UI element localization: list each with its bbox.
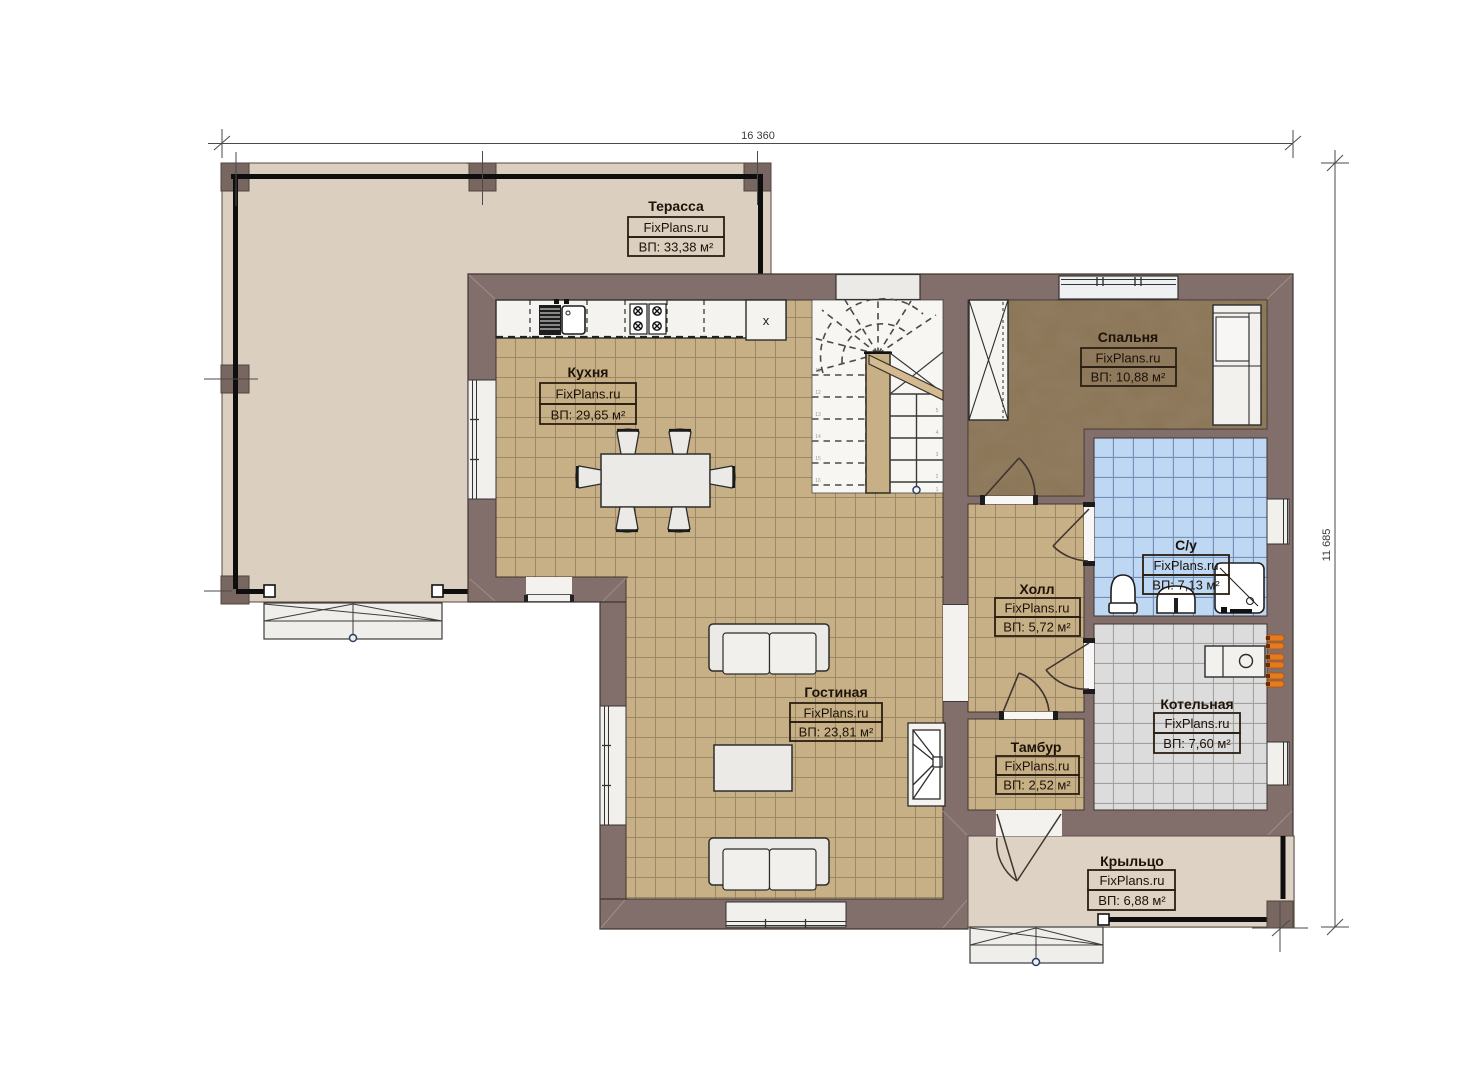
- svg-text:ВП: 5,72 м²: ВП: 5,72 м²: [1003, 620, 1071, 635]
- svg-text:FixPlans.ru: FixPlans.ru: [1004, 601, 1069, 616]
- svg-text:Тамбур: Тамбур: [1011, 739, 1062, 755]
- svg-text:14: 14: [815, 434, 821, 440]
- svg-text:ВП: 6,88 м²: ВП: 6,88 м²: [1098, 893, 1166, 908]
- svg-text:13: 13: [815, 412, 821, 418]
- svg-text:11 685: 11 685: [1321, 529, 1333, 562]
- svg-text:3: 3: [936, 452, 939, 458]
- svg-text:ВП: 23,81 м²: ВП: 23,81 м²: [799, 725, 874, 740]
- svg-text:15: 15: [815, 456, 821, 462]
- svg-text:x: x: [763, 313, 770, 328]
- svg-text:16: 16: [815, 478, 821, 484]
- svg-text:11: 11: [815, 368, 820, 374]
- svg-text:Кухня: Кухня: [568, 364, 609, 380]
- svg-text:ВП: 2,52 м²: ВП: 2,52 м²: [1003, 778, 1071, 793]
- svg-text:1: 1: [936, 487, 939, 493]
- svg-text:FixPlans.ru: FixPlans.ru: [1004, 759, 1069, 774]
- svg-text:ВП: 7,60 м²: ВП: 7,60 м²: [1163, 736, 1231, 751]
- svg-text:ВП: 7,13 м²: ВП: 7,13 м²: [1152, 578, 1220, 593]
- svg-text:С/у: С/у: [1175, 537, 1197, 553]
- svg-text:16 360: 16 360: [741, 130, 775, 142]
- svg-text:FixPlans.ru: FixPlans.ru: [555, 387, 620, 402]
- svg-text:Спальня: Спальня: [1098, 329, 1158, 345]
- svg-text:FixPlans.ru: FixPlans.ru: [1095, 351, 1160, 366]
- svg-text:Гостиная: Гостиная: [804, 684, 867, 700]
- svg-text:Холл: Холл: [1019, 581, 1054, 597]
- svg-text:5: 5: [936, 408, 939, 414]
- svg-text:12: 12: [815, 390, 821, 396]
- svg-text:FixPlans.ru: FixPlans.ru: [643, 220, 708, 235]
- svg-text:Крыльцо: Крыльцо: [1100, 853, 1164, 869]
- svg-text:ВП: 10,88 м²: ВП: 10,88 м²: [1091, 370, 1166, 385]
- svg-text:4: 4: [936, 430, 939, 436]
- svg-text:FixPlans.ru: FixPlans.ru: [1153, 558, 1218, 573]
- svg-text:ВП: 29,65 м²: ВП: 29,65 м²: [551, 408, 626, 423]
- svg-text:ВП: 33,38 м²: ВП: 33,38 м²: [639, 240, 714, 255]
- svg-text:FixPlans.ru: FixPlans.ru: [803, 706, 868, 721]
- svg-text:Котельная: Котельная: [1160, 696, 1233, 712]
- svg-text:Терасса: Терасса: [648, 198, 704, 214]
- svg-text:2: 2: [936, 474, 939, 480]
- svg-text:FixPlans.ru: FixPlans.ru: [1099, 873, 1164, 888]
- svg-text:FixPlans.ru: FixPlans.ru: [1164, 716, 1229, 731]
